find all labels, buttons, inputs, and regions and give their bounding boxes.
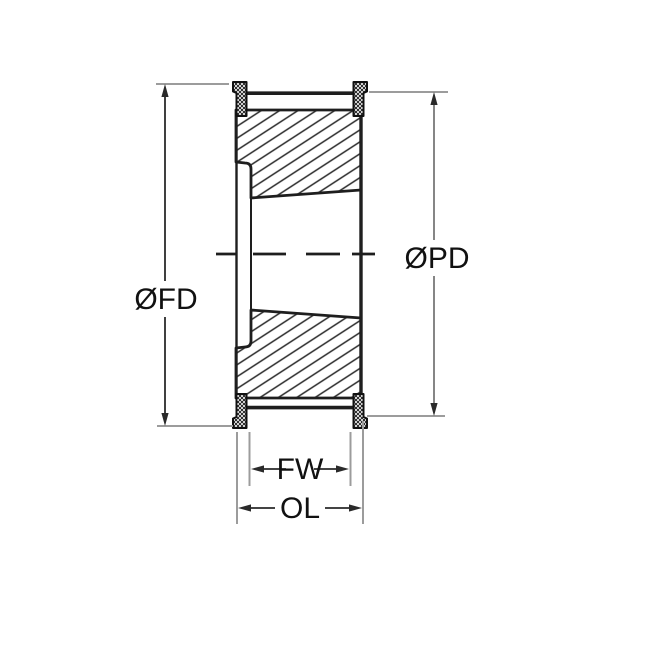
section-hatch-upper <box>236 110 361 198</box>
pulley-cross-section <box>216 82 375 428</box>
fd-label: ØFD <box>134 283 197 316</box>
flange-bottom-left <box>233 394 247 428</box>
dimension-pitch-diameter: ØPD <box>367 92 470 416</box>
ol-label: OL <box>280 492 320 525</box>
section-hatch-lower <box>236 310 361 398</box>
pd-arrow-down-icon <box>430 403 437 416</box>
fw-arrow-left-icon <box>251 465 264 472</box>
ol-arrow-left-icon <box>238 504 251 511</box>
pulley-technical-drawing: ØFD ØPD FW OL <box>0 0 670 670</box>
flange-top-right <box>354 82 368 116</box>
pd-label: ØPD <box>404 242 469 275</box>
dimension-face-width: FW <box>250 432 351 486</box>
fw-label: FW <box>277 453 324 486</box>
ol-arrow-right-icon <box>349 504 362 511</box>
pulley-drawing-canvas: ØFD ØPD FW OL <box>0 0 670 670</box>
fw-arrow-right-icon <box>336 465 349 472</box>
pd-arrow-up-icon <box>430 92 437 105</box>
flange-bottom-right <box>354 394 368 428</box>
fd-arrow-up-icon <box>161 84 168 97</box>
fd-arrow-down-icon <box>161 413 168 426</box>
